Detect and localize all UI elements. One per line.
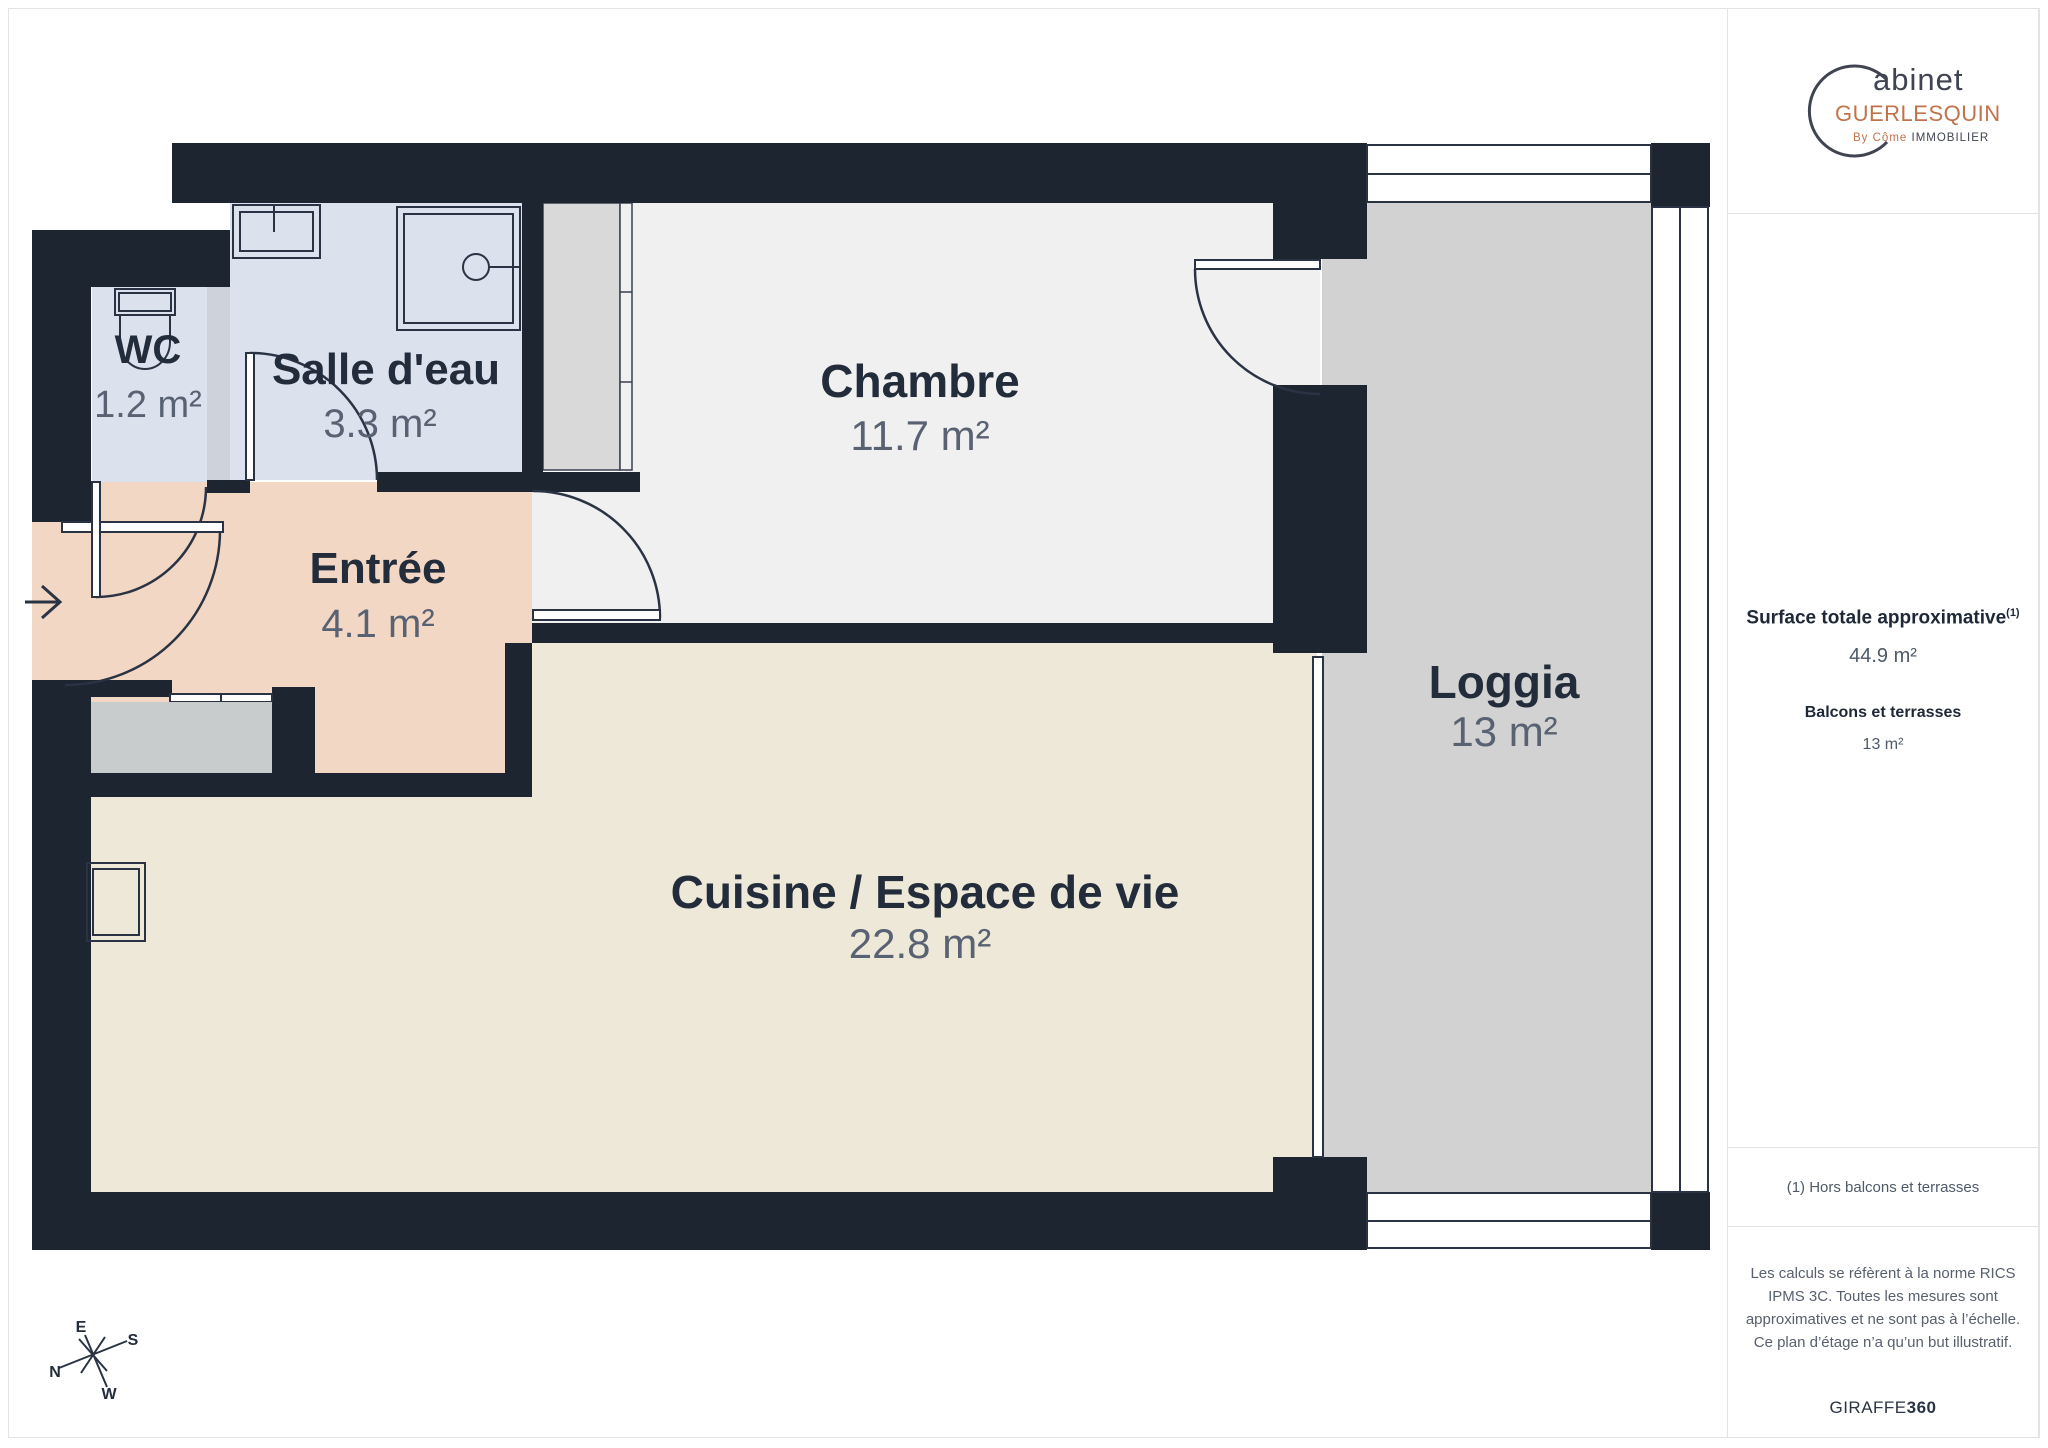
balcony-value: 13 m² (1863, 736, 1904, 754)
wardrobe-front-rail (620, 203, 632, 470)
salle-deau-door-leaf (246, 353, 254, 480)
room-area-loggia: 13 m² (1450, 708, 1557, 755)
chambre-door-leaf (533, 610, 660, 620)
floor-plan-page: WC 1.2 m² Salle d'eau 3.3 m² Entrée 4.1 … (0, 0, 2048, 1448)
compass-label-w: W (101, 1386, 117, 1403)
room-label-salle-deau: Salle d'eau (272, 345, 500, 394)
compass-rose: E S N W (30, 1295, 160, 1410)
room-area-wc: 1.2 m² (94, 384, 202, 426)
entry-door-leaf (62, 522, 223, 532)
logo-byline: By Côme IMMOBILIER (1853, 132, 1989, 144)
logo-text-name: GUERLESQUIN (1835, 101, 2001, 127)
compass-label-n: N (49, 1364, 61, 1381)
footnote-text: (1) Hors balcons et terrasses (1787, 1179, 1980, 1196)
room-label-cuisine: Cuisine / Espace de vie (671, 866, 1180, 918)
balcony-title: Balcons et terrasses (1805, 704, 1962, 722)
surface-summary-section: Surface totale approximative(1) 44.9 m² … (1728, 214, 2038, 1148)
logo-byline-by: By Côme (1853, 132, 1907, 144)
room-area-entree: 4.1 m² (321, 602, 434, 646)
compass-label-s: S (128, 1332, 139, 1349)
room-label-wc: WC (115, 328, 182, 372)
surface-total-value: 44.9 m² (1849, 645, 1917, 668)
brand-suffix: 360 (1907, 1398, 1937, 1417)
wardrobe-fixture (543, 203, 620, 470)
footnote-section: (1) Hors balcons et terrasses (1728, 1148, 2038, 1227)
legal-text: Les calculs se réfèrent à la norme RICS … (1740, 1262, 2026, 1355)
giraffe360-brand: GIRAFFE360 (1829, 1398, 1936, 1418)
compass-labels: E S N W (49, 1319, 138, 1403)
wc-partition-strip (207, 287, 230, 482)
surface-total-footnote-marker: (1) (2006, 607, 2019, 619)
logo-text-cabinet: abinet (1873, 62, 1963, 98)
agency-logo: abinet GUERLESQUIN By Côme IMMOBILIER (1777, 50, 1989, 172)
room-label-chambre: Chambre (820, 355, 1019, 407)
compass-label-e: E (76, 1319, 87, 1336)
legal-section: Les calculs se réfèrent à la norme RICS … (1728, 1227, 2038, 1437)
cuisine-loggia-sliding-door (1313, 657, 1323, 1157)
brand-prefix: GIRAFFE (1829, 1398, 1906, 1417)
compass-lines (59, 1335, 127, 1387)
room-area-chambre: 11.7 m² (850, 412, 989, 459)
room-area-salle-deau: 3.3 m² (323, 402, 436, 446)
agency-logo-section: abinet GUERLESQUIN By Côme IMMOBILIER (1728, 9, 2038, 214)
room-label-entree: Entrée (310, 544, 447, 593)
info-sidebar: abinet GUERLESQUIN By Côme IMMOBILIER Su… (1727, 8, 2039, 1438)
room-area-cuisine: 22.8 m² (849, 920, 991, 967)
surface-total-title: Surface totale approximative(1) (1746, 607, 2019, 629)
wc-door-leaf (92, 482, 100, 597)
entree-closet (91, 702, 272, 773)
logo-byline-immobilier: IMMOBILIER (1912, 132, 1990, 144)
surface-total-title-text: Surface totale approximative (1746, 607, 2006, 628)
room-label-loggia: Loggia (1429, 656, 1580, 708)
loggia-door-leaf (1195, 260, 1320, 269)
